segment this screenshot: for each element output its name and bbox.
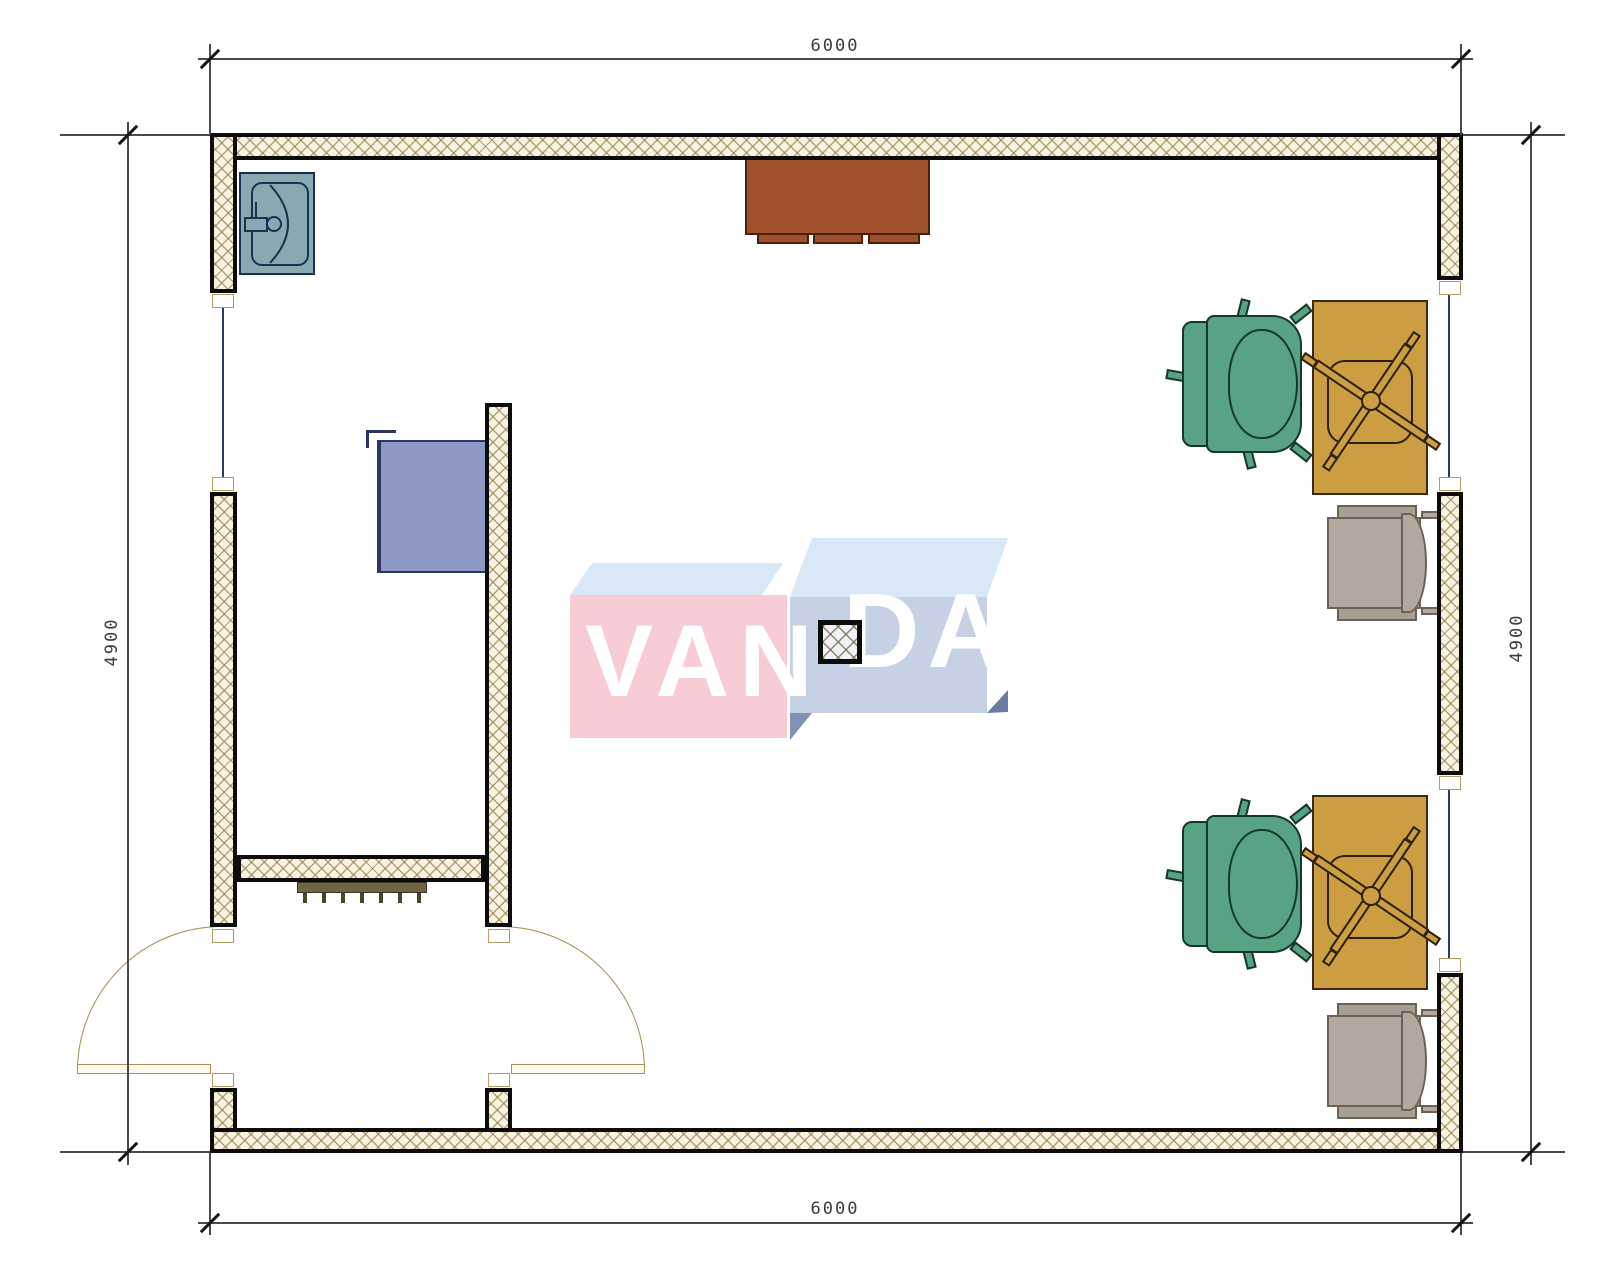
chair-leg — [1289, 803, 1312, 824]
desk-top — [1312, 300, 1428, 495]
door-swing-arc-right — [500, 926, 645, 1071]
caster-icon — [1405, 331, 1421, 349]
wall-right-upper — [1437, 133, 1463, 280]
column — [818, 620, 862, 664]
wall-bottom — [210, 1128, 1463, 1153]
window-right-upper — [1448, 294, 1450, 478]
window-left — [222, 307, 224, 478]
dimension-line-bottom — [198, 1222, 1473, 1224]
door-swing-arc-left — [77, 926, 222, 1071]
wash-basin — [239, 172, 315, 280]
door-leaf-left — [77, 1064, 211, 1074]
caster-icon — [1322, 948, 1338, 966]
watermark-text-da: DA — [843, 578, 1012, 684]
watermark-text-van: VAN — [585, 610, 823, 712]
door-jamb-cap — [488, 929, 510, 943]
chair-leg — [1289, 303, 1312, 324]
door-jamb-cap — [488, 1073, 510, 1087]
wall-cabinet — [377, 440, 487, 573]
wall-top — [210, 133, 1463, 160]
extension-line — [1463, 134, 1565, 136]
wall-partition-east-stub — [485, 1088, 512, 1132]
tap-body — [245, 218, 267, 231]
sill-cap — [212, 294, 234, 308]
door-leaf-right — [511, 1064, 645, 1074]
dimension-label-left: 4900 — [102, 592, 122, 692]
wall-right-middle — [1437, 492, 1463, 775]
sill-cap — [212, 477, 234, 491]
side-chair-gray-top — [1327, 505, 1439, 621]
chair-backrest — [1401, 513, 1427, 613]
extension-line — [1463, 1151, 1565, 1153]
chair-backrest — [1401, 1011, 1427, 1111]
armchair-green-bottom — [1182, 813, 1304, 955]
radiator — [297, 882, 427, 893]
desk-bottom — [1312, 795, 1428, 990]
dimension-line-top — [198, 58, 1473, 60]
side-chair-gray-bottom — [1327, 1003, 1439, 1119]
watermark-shadow-right — [987, 690, 1008, 713]
dimension-label-top: 6000 — [785, 36, 885, 56]
wall-left-middle — [210, 492, 237, 927]
dimension-label-right: 4900 — [1507, 588, 1527, 688]
caster-icon — [1423, 435, 1441, 451]
dimension-label-bottom: 6000 — [785, 1199, 885, 1219]
wall-right-lower — [1437, 973, 1463, 1153]
caster-icon — [1322, 453, 1338, 471]
extension-line — [60, 134, 210, 136]
window-right-lower — [1448, 789, 1450, 959]
wall-partition-east — [485, 403, 512, 927]
armchair-green-top — [1182, 313, 1304, 455]
sideboard — [745, 158, 930, 235]
dimension-line-right — [1530, 122, 1532, 1165]
door-jamb-cap — [212, 929, 234, 943]
tap-knob — [267, 217, 281, 231]
extension-line — [60, 1151, 210, 1153]
watermark-box-left-top — [570, 563, 783, 595]
caster-icon — [1405, 826, 1421, 844]
wall-partition-south — [237, 855, 485, 882]
floor-plan: VAN DA — [0, 0, 1600, 1280]
chair-cushion — [1228, 329, 1298, 439]
sill-cap — [1439, 776, 1461, 790]
cabinet-bracket-icon — [366, 430, 396, 433]
caster-icon — [1423, 930, 1441, 946]
door-jamb-cap — [212, 1073, 234, 1087]
dimension-line-left — [127, 122, 129, 1165]
sill-cap — [1439, 477, 1461, 491]
wall-left-upper — [210, 133, 237, 293]
wall-left-door-stub — [210, 1088, 237, 1132]
sill-cap — [1439, 281, 1461, 295]
cabinet-bracket-icon — [366, 430, 369, 448]
radiator-fins — [303, 893, 423, 903]
chair-cushion — [1228, 829, 1298, 939]
sill-cap — [1439, 958, 1461, 972]
